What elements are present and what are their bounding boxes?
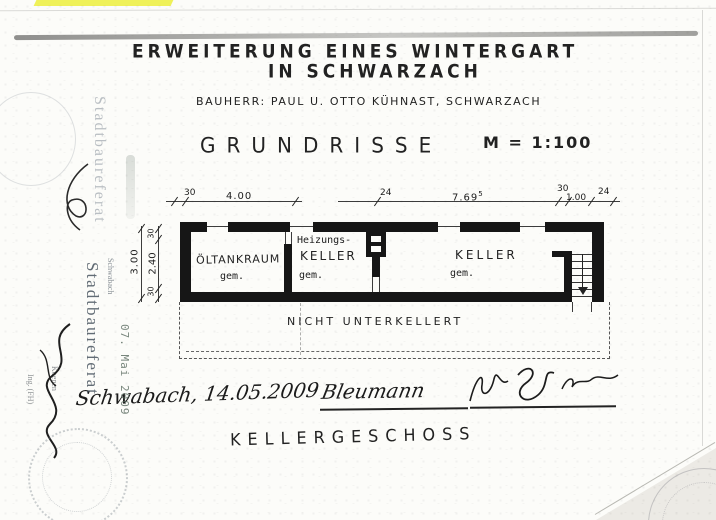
- client-line: BAUHERR: PAUL U. OTTO KÜHNAST, SCHWARZAC…: [196, 95, 541, 108]
- floor-label: KELLERGESCHOSS: [230, 423, 477, 449]
- handwritten-place-date: Schwabach, 14.05.2009: [74, 378, 320, 411]
- door-jamb-line: [291, 232, 292, 244]
- wall-top-segment: [460, 222, 520, 232]
- dim-line-vert-outer: [141, 226, 142, 302]
- dim-top-24a: 24: [380, 188, 391, 198]
- wall-top-segment: [228, 222, 290, 232]
- dim-superscript: 5: [478, 190, 483, 198]
- scale-label: M = 1:100: [483, 133, 592, 152]
- room1-name: ÖLTANKRAUM: [196, 252, 281, 266]
- wall-right: [592, 222, 604, 302]
- scan-shadow-band: [14, 31, 698, 40]
- scanned-plan-page: ERWEITERUNG EINES WINTERGART IN SCHWARZA…: [0, 0, 716, 520]
- dim-top-24b: 24: [598, 187, 609, 197]
- room2-name: KELLER: [300, 249, 357, 263]
- signature-underline: [320, 407, 468, 411]
- stamp-city: Schwabach: [106, 258, 115, 294]
- room2-prefix: Heizungs-: [297, 235, 351, 246]
- door-jamb-line: [379, 277, 380, 292]
- dim-left-240: 2.40: [148, 252, 159, 274]
- room3-name: KELLER: [455, 248, 518, 262]
- dim-left-30top: 30: [147, 228, 156, 238]
- title-line2: IN SCHWARZACH: [268, 61, 482, 83]
- room1-note: gem.: [220, 271, 244, 282]
- area-note: NICHT UNTERKELLERT: [287, 315, 463, 328]
- stair-walk-line: [582, 254, 583, 288]
- wall-bottom: [180, 292, 570, 302]
- wall-top-segment: [313, 222, 438, 232]
- dim-left-30bottom: 30: [147, 286, 156, 296]
- highlight-tape: [34, 0, 174, 6]
- dim-top-30a: 30: [184, 188, 195, 198]
- handwritten-checkmark: [52, 158, 98, 234]
- wall-left: [180, 222, 191, 302]
- wall-interior-2: [372, 257, 380, 277]
- unexcavated-inner-dash: [186, 351, 600, 352]
- title-line1: ERWEITERUNG EINES WINTERGART: [132, 41, 578, 63]
- signature-scribbles: [466, 363, 622, 409]
- stair-side-wall: [564, 251, 572, 302]
- door-jamb-line: [285, 232, 286, 244]
- dim-left-total: 3.00: [130, 248, 141, 274]
- stamp-date-smudge: [126, 155, 135, 219]
- dim-top-100: 1.00: [566, 193, 586, 203]
- dim-top-769: 7.695: [452, 190, 484, 203]
- stamp-date: 07. Mai 2009: [118, 324, 131, 415]
- stamp-office-lower: Stadtbaureferat: [82, 262, 102, 396]
- chimney-flue: [371, 236, 381, 242]
- wall-interior-1: [284, 244, 292, 292]
- round-seal-inner-ring: [42, 442, 112, 512]
- wall-top-segment: [545, 222, 592, 232]
- stair-arrow-head: [578, 287, 588, 295]
- door-jamb-line: [372, 277, 373, 292]
- room2-note: gem.: [299, 270, 323, 281]
- chimney-flue: [371, 246, 381, 252]
- paper-edge-line-top: [0, 8, 716, 11]
- dim-top-400: 4.00: [226, 191, 252, 202]
- drawing-type-label: GRUNDRISSE: [200, 132, 442, 157]
- handwritten-name: Bleumann: [320, 378, 427, 404]
- room3-note: gem.: [450, 268, 474, 279]
- paper-edge-line-right: [702, 10, 703, 446]
- unexcavated-vert-dash: [300, 303, 301, 355]
